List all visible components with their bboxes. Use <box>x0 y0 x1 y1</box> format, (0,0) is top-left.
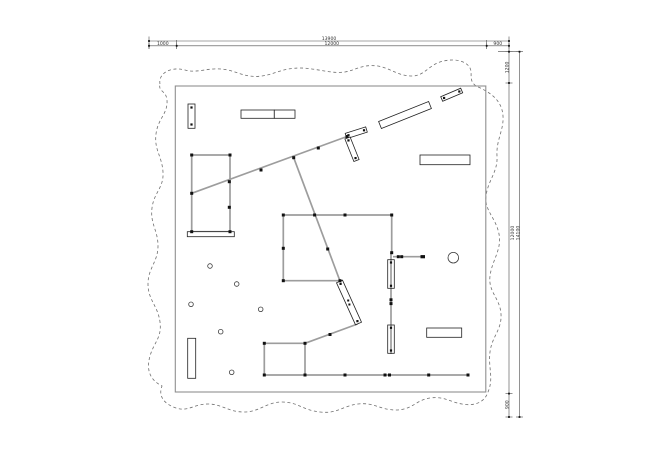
pile-circles <box>189 252 459 374</box>
dim-top-segment-left-label: 1000 <box>157 41 169 47</box>
dim-right-segment-top-label: 1200 <box>504 61 510 73</box>
plan-drawing: 13900 1000 12000 900 1200 12000 14100 90… <box>0 0 650 460</box>
drawing-canvas: 13900 1000 12000 900 1200 12000 14100 90… <box>0 0 650 460</box>
dim-right-overall-label: 14100 <box>515 226 521 241</box>
dim-right-segment-mid-label: 12000 <box>510 226 516 241</box>
dim-top-segment-right-label: 900 <box>493 41 502 47</box>
dim-right-segment-bottom-label: 900 <box>504 400 510 409</box>
dimension-lines <box>148 37 523 418</box>
dimension-labels: 13900 1000 12000 900 1200 12000 14100 90… <box>157 36 521 409</box>
slab-frame <box>175 86 486 392</box>
dim-top-segment-mid-label: 12000 <box>324 41 339 47</box>
